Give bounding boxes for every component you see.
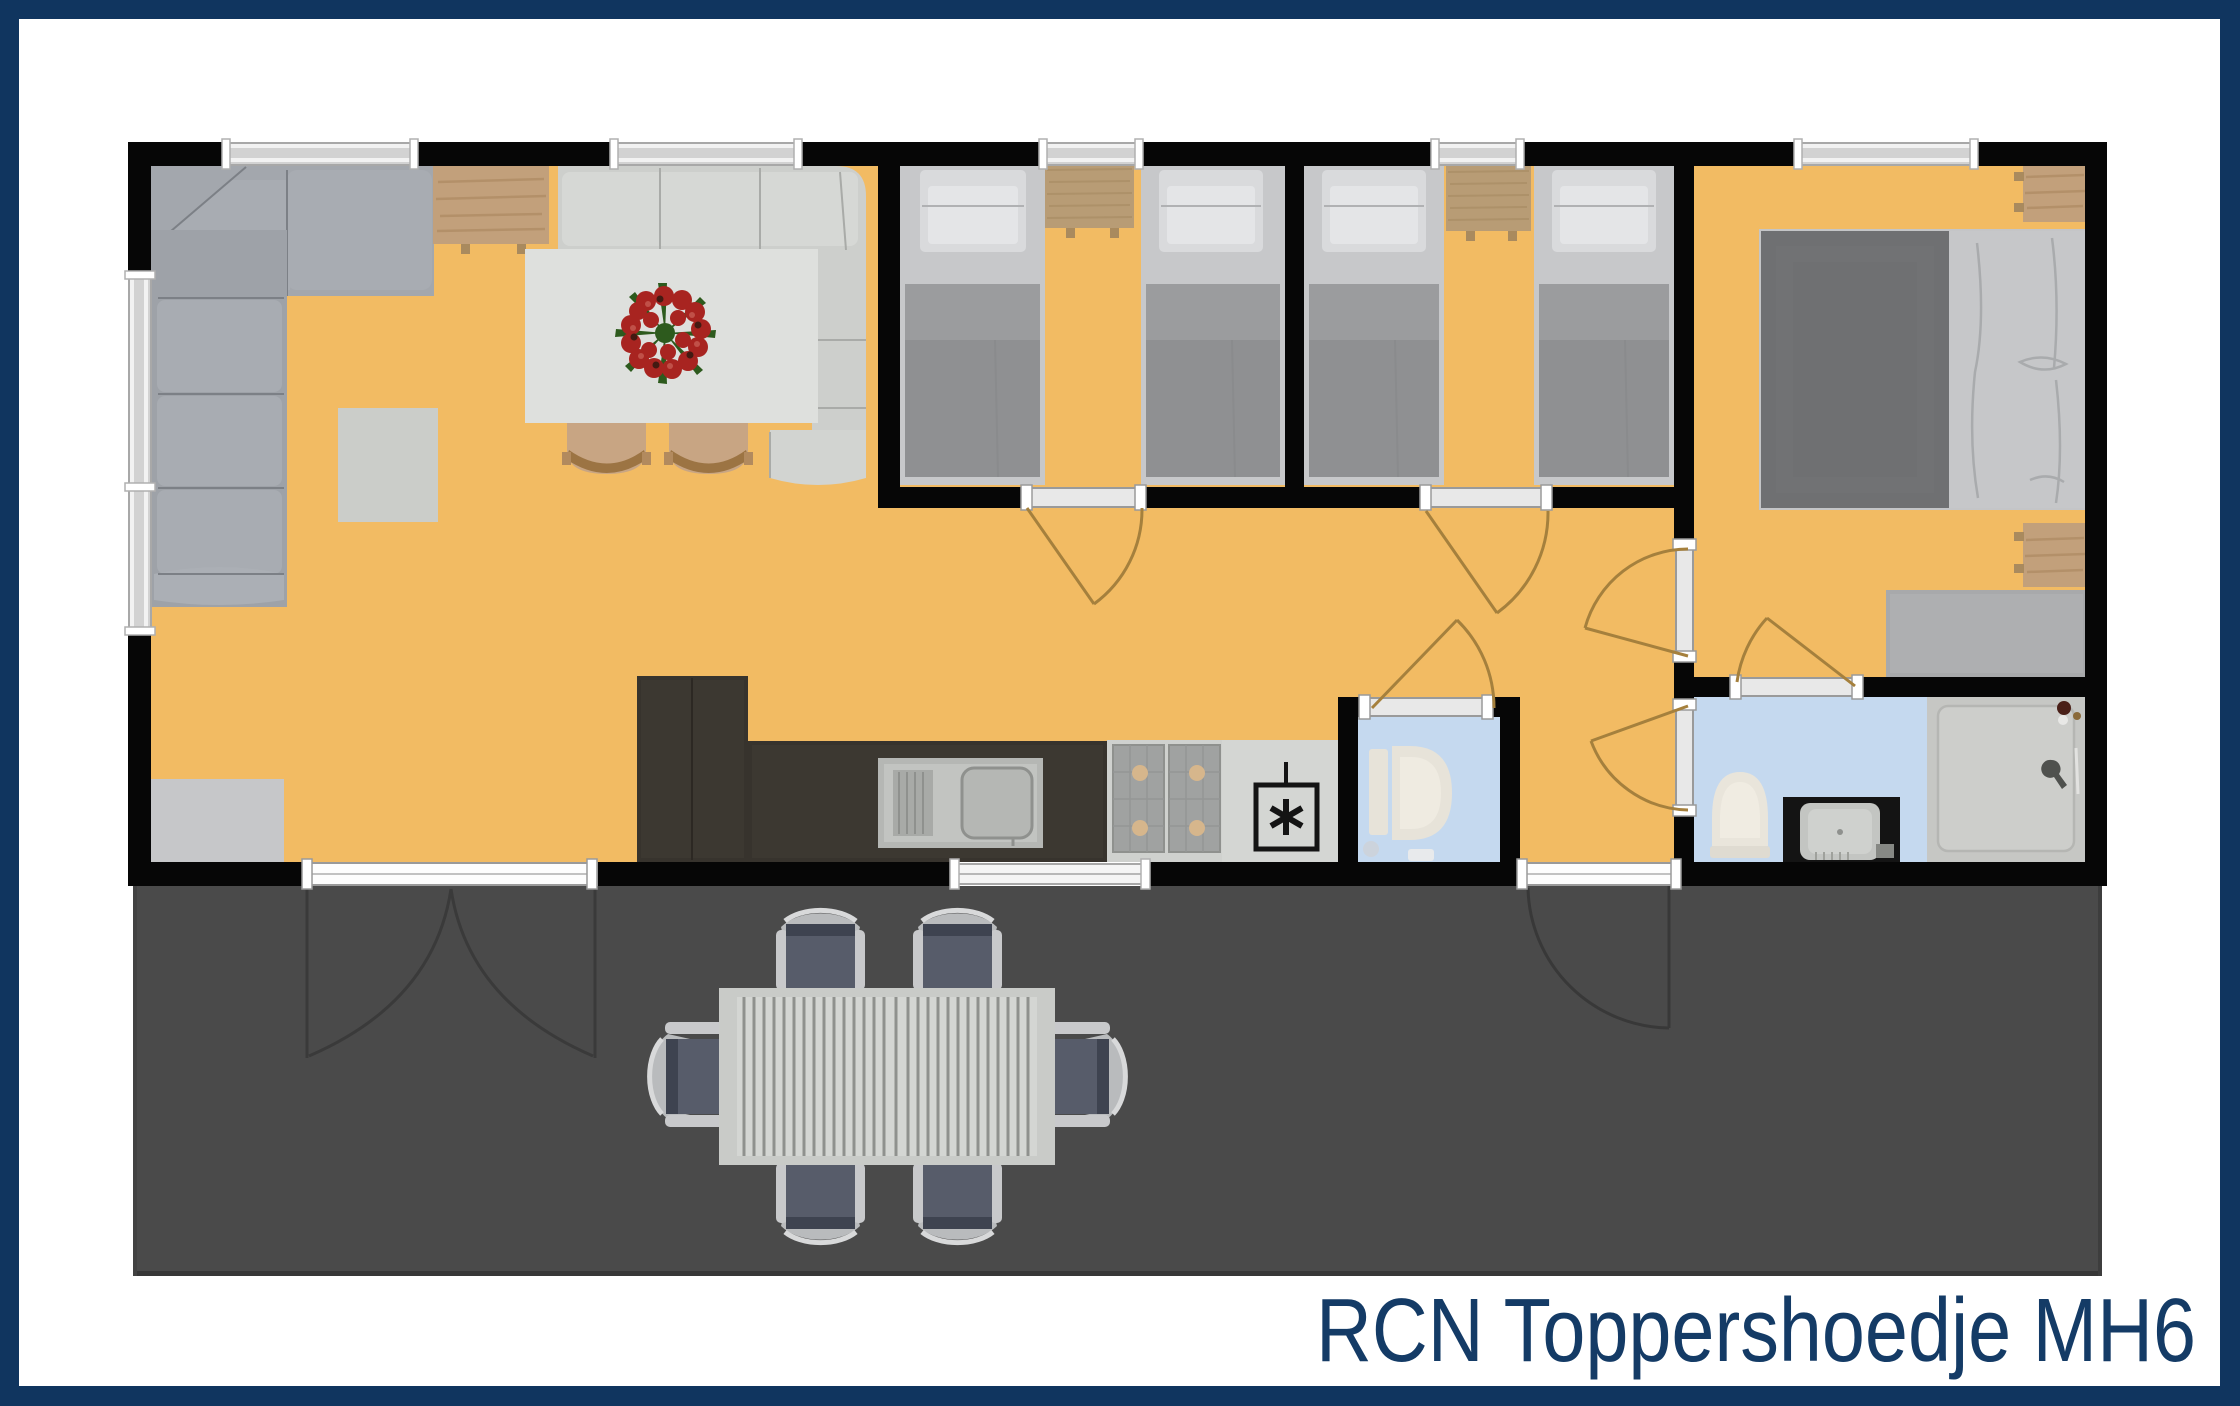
svg-text:RCN Toppershoedje MH6: RCN Toppershoedje MH6 [1316,1281,2196,1381]
